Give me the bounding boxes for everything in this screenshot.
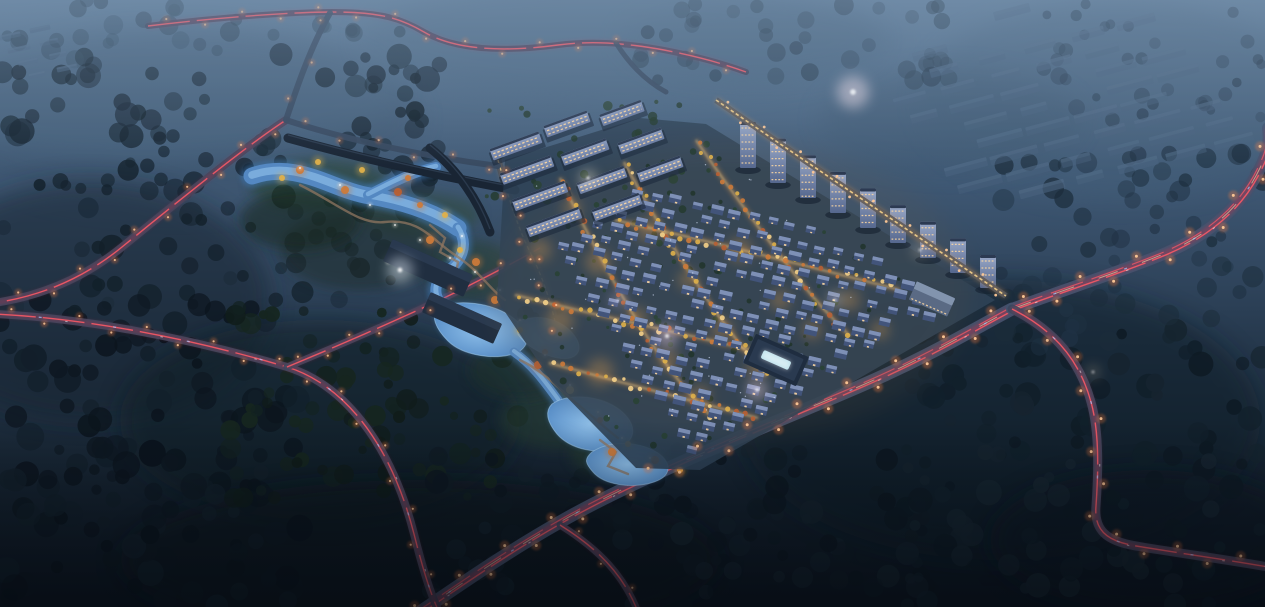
streetlight	[994, 294, 997, 297]
streetlight	[327, 355, 329, 357]
forest-tree	[1150, 205, 1164, 219]
forest-tree	[221, 201, 235, 215]
streetlight	[945, 249, 948, 252]
forest-tree	[440, 396, 449, 405]
streetlight	[877, 386, 880, 389]
garden-tree	[594, 202, 600, 208]
forest-tree	[95, 334, 117, 356]
path-light	[449, 257, 451, 259]
window-sparkle	[740, 392, 741, 393]
streetlight	[1046, 339, 1049, 342]
street-tree	[772, 242, 776, 246]
street-tree	[845, 333, 850, 338]
streetlight	[146, 326, 148, 328]
forest-tree	[60, 180, 71, 191]
street-tree	[683, 264, 689, 270]
forest-tree	[2, 339, 17, 354]
garden-tree	[602, 198, 607, 203]
forest-tree	[205, 301, 226, 322]
garden-tree	[688, 351, 694, 357]
streetlight	[1262, 178, 1265, 181]
forest-tree	[208, 244, 225, 261]
window-sparkle	[708, 375, 709, 376]
window-sparkle	[760, 290, 761, 291]
street-tree	[735, 191, 739, 195]
forest-tree	[74, 242, 90, 258]
aerial-night-rendering	[0, 0, 1265, 607]
forest-tree	[194, 387, 216, 409]
forest-tree	[1179, 345, 1194, 360]
autumn-tree	[417, 202, 423, 208]
garden-tree	[622, 185, 628, 191]
forest-tree	[1242, 266, 1263, 287]
street-tree	[827, 312, 833, 318]
window-sparkle	[750, 179, 751, 180]
streetlight	[43, 323, 45, 325]
street-tree	[671, 251, 676, 256]
streetlight	[450, 288, 452, 290]
forest-tree	[292, 281, 314, 303]
street-tree	[630, 181, 634, 185]
garden-tree	[804, 342, 808, 346]
streetlight	[989, 309, 992, 312]
autumn-tree	[405, 175, 411, 181]
garden-tree	[587, 317, 591, 321]
streetlight	[133, 229, 135, 231]
streetlight	[538, 284, 540, 286]
garden-tree	[867, 308, 871, 312]
forest-tree	[1191, 251, 1207, 267]
streetlight	[894, 359, 897, 362]
streetlight	[1222, 226, 1225, 229]
autumn-tree	[457, 247, 463, 253]
forest-tree	[181, 257, 198, 274]
streetlight	[518, 241, 520, 243]
streetlight	[110, 331, 112, 333]
streetlight	[53, 292, 55, 294]
forest-tree	[251, 405, 263, 417]
street-tree	[862, 278, 866, 282]
streetlight	[10, 308, 12, 310]
forest-tree	[922, 386, 945, 409]
forest-tree	[1010, 391, 1032, 413]
forest-tree	[1197, 278, 1217, 298]
garden-tree	[485, 194, 489, 198]
autumn-tree	[472, 258, 480, 266]
forest-tree	[21, 344, 47, 370]
forest-tree	[151, 409, 164, 422]
garden-tree	[860, 244, 866, 250]
autumn-tree	[426, 236, 434, 244]
forest-tree	[181, 213, 192, 224]
streetlight	[1022, 295, 1025, 298]
streetlight	[502, 195, 504, 197]
streetlight	[1079, 389, 1082, 392]
street-tree	[810, 293, 814, 297]
forest-tree	[232, 301, 246, 315]
window-sparkle	[530, 279, 531, 280]
street-tree	[743, 207, 748, 212]
forest-tree	[264, 387, 275, 398]
streetlight	[278, 358, 280, 360]
street-tree	[804, 286, 809, 291]
forest-tree	[952, 376, 967, 391]
light-bloom-core	[587, 177, 590, 180]
forest-tree	[450, 412, 458, 420]
forest-tree	[27, 371, 48, 392]
autumn-tree	[279, 175, 285, 181]
forest-tree	[1080, 242, 1096, 258]
window-sparkle	[750, 373, 751, 374]
window-sparkle	[709, 357, 710, 358]
window-sparkle	[672, 280, 673, 281]
forest-tree	[60, 399, 75, 414]
streetlight	[114, 259, 116, 261]
streetlight	[306, 380, 308, 382]
streetlight	[872, 200, 875, 203]
street-tree	[634, 227, 638, 231]
window-sparkle	[720, 243, 721, 244]
street-tree	[740, 198, 745, 203]
street-tree	[819, 266, 824, 271]
street-tree	[613, 318, 618, 323]
forest-tree	[432, 346, 453, 367]
street-tree	[574, 203, 579, 208]
street-tree	[670, 232, 674, 236]
street-tree	[718, 403, 722, 407]
forest-tree	[1146, 374, 1165, 393]
path-light	[461, 235, 463, 237]
light-bloom-core	[755, 388, 759, 392]
forest-tree	[305, 401, 319, 415]
street-tree	[721, 245, 726, 250]
light-bloom-core	[919, 249, 922, 252]
garden-tree	[560, 345, 565, 350]
forest-tree	[407, 335, 420, 348]
streetlight	[177, 344, 179, 346]
streetlight	[79, 268, 81, 270]
streetlight	[1076, 355, 1079, 358]
street-tree	[631, 171, 634, 174]
window-sparkle	[774, 397, 775, 398]
streetlight	[845, 381, 848, 384]
window-sparkle	[809, 287, 810, 288]
window-sparkle	[585, 299, 586, 300]
street-tree	[720, 180, 725, 185]
bottom-vignette	[0, 420, 1265, 607]
window-sparkle	[653, 294, 654, 295]
forest-tree	[34, 179, 46, 191]
forest-tree	[140, 346, 156, 362]
street-tree	[660, 232, 665, 237]
streetlight	[167, 216, 169, 218]
garden-tree	[603, 289, 606, 292]
forest-tree	[75, 183, 86, 194]
street-tree	[714, 242, 718, 246]
tower-roof	[980, 255, 996, 258]
forest-tree	[128, 294, 151, 317]
street-tree	[645, 194, 649, 198]
street-tree	[612, 377, 617, 382]
forest-tree	[224, 271, 238, 285]
path-light	[369, 204, 371, 206]
forest-tree	[1179, 173, 1192, 186]
window-sparkle	[856, 275, 857, 276]
window-sparkle	[534, 279, 535, 280]
streetlight	[1232, 194, 1235, 197]
streetlight	[17, 291, 19, 293]
forest-tree	[1031, 236, 1047, 252]
forest-tree	[1099, 331, 1119, 351]
forest-tree	[1118, 180, 1136, 198]
forest-tree	[1233, 285, 1247, 299]
forest-tree	[140, 182, 159, 201]
window-sparkle	[571, 328, 572, 329]
forest-tree	[1065, 319, 1080, 334]
forest-tree	[360, 342, 372, 354]
forest-tree	[1158, 305, 1179, 326]
forest-tree	[1115, 293, 1136, 314]
streetlight	[974, 337, 977, 340]
window-sparkle	[706, 409, 707, 410]
streetlight	[243, 360, 245, 362]
streetlight	[796, 402, 799, 405]
garden-tree	[817, 285, 821, 289]
garden-tree	[699, 262, 706, 269]
forest-tree	[303, 334, 317, 348]
streetlight	[942, 335, 945, 338]
forest-tree	[120, 225, 131, 236]
forest-tree	[92, 241, 105, 254]
path-light	[339, 184, 341, 186]
window-sparkle	[749, 179, 750, 180]
streetlight	[480, 284, 482, 286]
light-bloom-core	[834, 299, 837, 302]
street-tree	[704, 243, 709, 248]
garden-tree	[690, 191, 695, 196]
window-sparkle	[670, 239, 671, 240]
tower-roof	[830, 172, 846, 175]
window-sparkle	[608, 415, 609, 416]
window-sparkle	[627, 257, 628, 258]
forest-tree	[1043, 267, 1062, 286]
garden-tree	[523, 315, 528, 320]
window-sparkle	[631, 307, 632, 308]
street-tree	[568, 366, 573, 371]
window-sparkle	[696, 222, 697, 223]
forest-tree	[999, 384, 1013, 398]
street-tree	[543, 300, 548, 305]
streetlight	[1112, 280, 1115, 283]
streetlight	[78, 315, 80, 317]
garden-tree	[897, 277, 900, 280]
street-tree	[587, 371, 590, 374]
streetlight	[399, 311, 401, 313]
streetlight	[429, 309, 431, 311]
streetlight	[926, 362, 929, 365]
street-tree	[708, 404, 712, 408]
streetlight	[885, 220, 888, 223]
window-sparkle	[536, 185, 537, 186]
street-tree	[587, 307, 592, 312]
streetlight	[1079, 275, 1082, 278]
forest-tree	[1236, 357, 1249, 370]
light-bloom-core	[1092, 371, 1095, 374]
garden-tree	[625, 354, 630, 359]
streetlight	[220, 174, 222, 176]
street-tree	[880, 279, 884, 283]
window-sparkle	[850, 297, 851, 298]
street-tree	[569, 309, 574, 314]
street-tree	[625, 222, 630, 227]
street-tree	[579, 307, 583, 311]
street-tree	[691, 394, 696, 399]
street-tree	[649, 322, 653, 326]
forest-tree	[192, 358, 203, 369]
forest-tree	[82, 365, 98, 381]
streetlight	[1055, 300, 1058, 303]
streetlight	[297, 356, 299, 358]
garden-tree	[708, 206, 712, 210]
streetlight	[340, 390, 342, 392]
streetlight	[909, 224, 912, 227]
window-sparkle	[718, 380, 719, 381]
streetlight	[186, 186, 188, 188]
street-tree	[694, 279, 699, 284]
street-tree	[716, 172, 720, 176]
forest-tree	[1014, 323, 1033, 342]
street-tree	[621, 322, 626, 327]
window-sparkle	[716, 306, 717, 307]
light-bloom-core	[617, 299, 620, 302]
garden-tree	[606, 326, 609, 329]
street-tree	[525, 299, 530, 304]
forest-tree	[1059, 303, 1073, 317]
forest-tree	[299, 306, 309, 316]
forest-tree	[992, 189, 1014, 211]
streetlight	[848, 196, 851, 199]
streetlight	[555, 304, 557, 306]
forest-tree	[1203, 310, 1221, 328]
window-sparkle	[659, 286, 660, 287]
streetlight	[982, 273, 985, 276]
garden-tree	[748, 336, 753, 341]
street-tree	[647, 387, 651, 391]
garden-tree	[633, 398, 639, 404]
streetlight	[538, 258, 540, 260]
forest-tree	[1212, 257, 1232, 277]
street-tree	[828, 269, 832, 273]
streetlight	[958, 269, 961, 272]
streetlight	[378, 332, 380, 334]
forest-tree	[49, 360, 68, 379]
garden-tree	[682, 377, 685, 380]
street-tree	[561, 307, 565, 311]
streetlight	[500, 262, 502, 264]
street-tree	[720, 315, 725, 320]
garden-tree	[560, 377, 567, 384]
streetlight	[520, 215, 522, 217]
street-tree	[728, 185, 733, 190]
path-light	[474, 271, 476, 273]
window-sparkle	[672, 409, 673, 410]
tower-roof	[890, 205, 906, 208]
forest-tree	[262, 398, 273, 409]
top-haze	[0, 0, 1265, 170]
street-tree	[517, 296, 521, 300]
garden-tree	[822, 230, 826, 234]
autumn-tree	[341, 186, 349, 194]
garden-tree	[533, 181, 542, 190]
forest-tree	[78, 197, 99, 218]
streetlight	[1135, 255, 1138, 258]
streetlight	[1028, 310, 1031, 313]
streetlight	[836, 175, 839, 178]
forest-tree	[1108, 353, 1131, 376]
streetlight	[827, 407, 830, 410]
forest-tree	[384, 380, 393, 389]
street-tree	[603, 258, 608, 263]
autumn-tree	[394, 188, 402, 196]
garden-tree	[672, 259, 677, 264]
garden-tree	[692, 366, 696, 370]
forest-tree	[237, 270, 249, 282]
streetlight	[551, 330, 553, 332]
garden-tree	[491, 192, 500, 201]
street-tree	[639, 331, 644, 336]
forest-tree	[107, 276, 123, 292]
window-sparkle	[692, 272, 693, 273]
street-tree	[595, 243, 600, 248]
street-tree	[692, 337, 696, 341]
street-tree	[638, 387, 642, 391]
autumn-tree	[442, 212, 448, 218]
forest-tree	[92, 278, 105, 291]
street-tree	[801, 263, 805, 267]
streetlight	[1100, 417, 1103, 420]
path-light	[394, 224, 396, 226]
forest-tree	[1111, 230, 1130, 249]
street-tree	[534, 297, 539, 302]
streetlight	[1188, 231, 1191, 234]
tower-roof	[860, 189, 876, 192]
garden-tree	[747, 299, 752, 304]
street-tree	[677, 236, 682, 241]
street-tree	[628, 386, 633, 391]
garden-tree	[555, 271, 560, 276]
street-tree	[767, 235, 772, 240]
window-sparkle	[639, 345, 640, 346]
forest-tree	[331, 401, 340, 410]
street-tree	[683, 334, 688, 339]
street-tree	[560, 362, 565, 367]
forest-tree	[269, 293, 284, 308]
street-tree	[595, 373, 598, 376]
forest-tree	[1216, 231, 1227, 242]
path-light	[419, 239, 421, 241]
window-sparkle	[641, 395, 642, 396]
streetlight	[1169, 258, 1172, 261]
forest-tree	[396, 389, 417, 410]
street-tree	[686, 238, 691, 243]
forest-tree	[101, 184, 112, 195]
window-sparkle	[786, 220, 787, 221]
garden-tree	[654, 315, 658, 319]
garden-tree	[718, 200, 722, 204]
street-tree	[622, 377, 625, 380]
streetlight	[348, 334, 350, 336]
forest-tree	[1206, 236, 1217, 247]
